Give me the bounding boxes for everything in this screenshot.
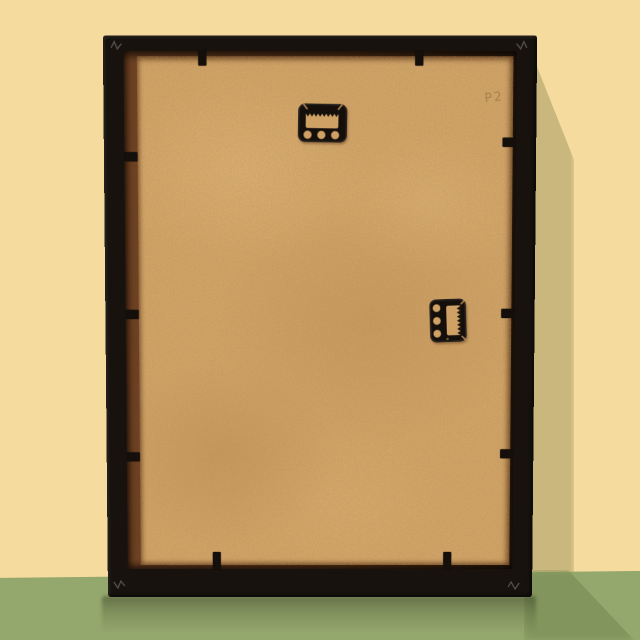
- retainer-clip-top-left: [198, 50, 206, 66]
- retainer-clip-left-middle: [126, 310, 139, 319]
- corner-staple-icon: [515, 39, 528, 51]
- corner-staple-icon: [113, 579, 126, 590]
- retainer-clip-top-right: [415, 50, 423, 66]
- retainer-clip-bottom-left: [213, 552, 221, 570]
- retainer-clip-right-upper: [503, 138, 516, 147]
- retainer-clip-bottom-right: [443, 552, 451, 570]
- corner-staple-icon: [507, 580, 520, 591]
- retainer-clip-right-lower: [500, 449, 513, 458]
- pencil-marking: P2: [484, 89, 505, 106]
- photo-scene: P2: [0, 0, 640, 640]
- retainer-clip-left-lower: [127, 452, 140, 461]
- retainer-clip-right-middle: [501, 309, 514, 318]
- corner-staple-icon: [110, 39, 123, 51]
- retainer-clip-left-upper: [124, 152, 137, 161]
- sawtooth-hanger-icon: [429, 298, 468, 343]
- frame-reflection: [102, 596, 536, 640]
- sawtooth-hanger-icon: [297, 103, 348, 143]
- picture-frame-back: P2: [103, 35, 537, 597]
